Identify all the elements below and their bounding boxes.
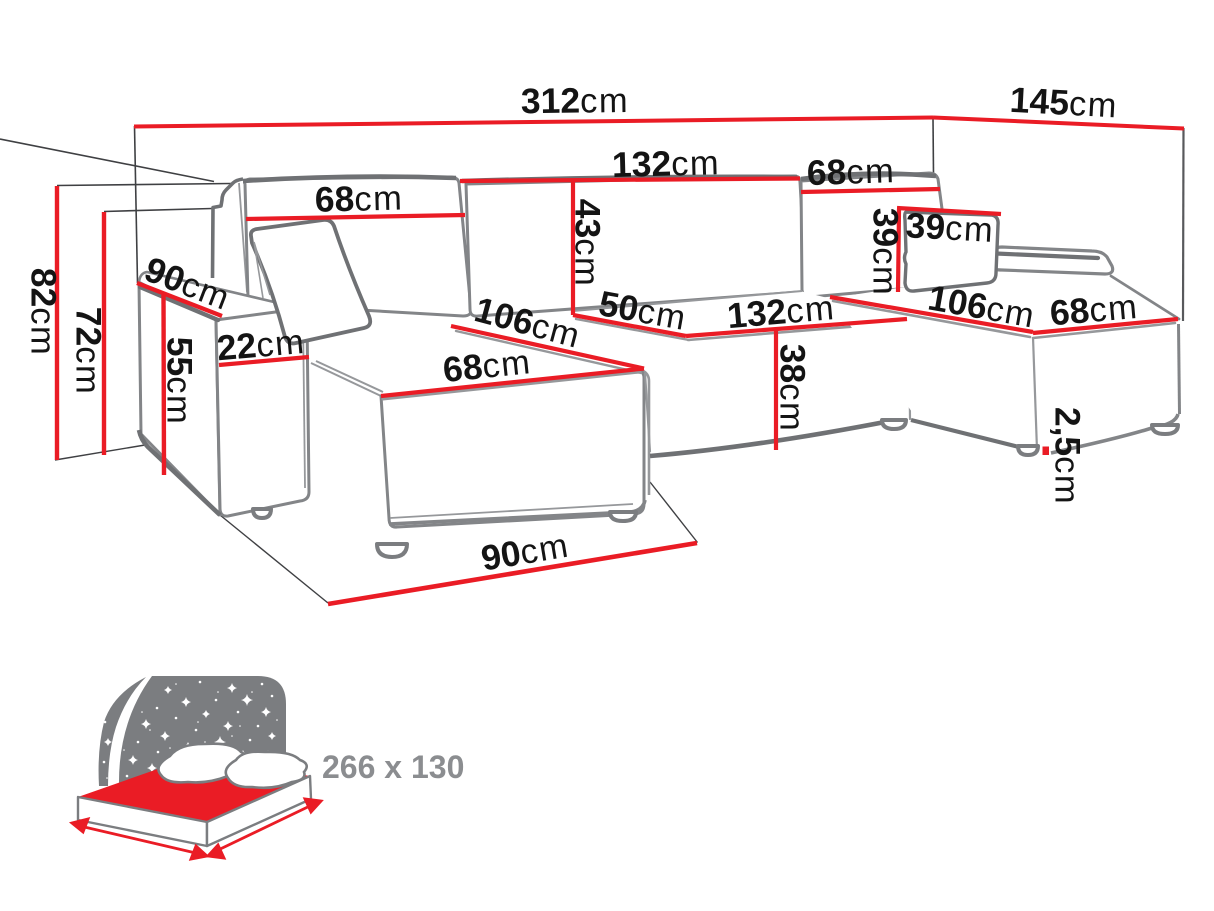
svg-text:55cm: 55cm [159,337,199,426]
svg-text:43cm: 43cm [567,199,607,288]
svg-text:2,5cm: 2,5cm [1047,407,1087,505]
svg-text:38cm: 38cm [772,344,812,433]
svg-text:145cm: 145cm [1009,80,1119,126]
svg-text:68cm: 68cm [806,150,896,193]
svg-text:312cm: 312cm [521,80,630,121]
svg-text:39cm: 39cm [905,205,995,250]
svg-text:82cm: 82cm [23,268,63,357]
svg-text:266 x 130: 266 x 130 [322,749,464,785]
svg-text:132cm: 132cm [611,142,720,185]
svg-text:22cm: 22cm [215,321,307,369]
svg-text:39cm: 39cm [865,208,905,297]
svg-text:68cm: 68cm [314,177,404,219]
svg-text:72cm: 72cm [68,307,108,396]
svg-text:68cm: 68cm [1048,286,1140,334]
